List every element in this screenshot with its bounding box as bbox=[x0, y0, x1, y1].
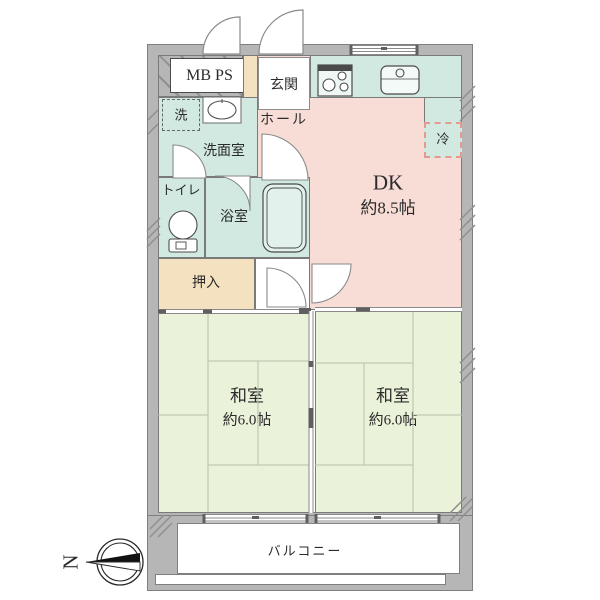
closet-area bbox=[158, 258, 255, 310]
compass-north-label: N bbox=[61, 554, 82, 569]
compass-icon bbox=[86, 539, 143, 585]
inner-hall-area bbox=[255, 258, 310, 310]
toilet-area bbox=[158, 177, 205, 258]
kitchen-counter-side bbox=[424, 97, 462, 123]
bath-area bbox=[205, 177, 310, 258]
balcony-floor bbox=[178, 524, 459, 573]
meterbox-label-box: MB PS bbox=[170, 58, 249, 93]
fridge-space bbox=[424, 122, 462, 158]
entrance-area bbox=[258, 57, 310, 110]
washitsu-left-area bbox=[158, 313, 310, 513]
washer-space bbox=[162, 99, 200, 131]
washitsu-right-area bbox=[315, 310, 462, 513]
floorplan: MB PS 玄関 ホール 洗 洗面室 トイレ 浴室 押入 冷 DK 約8.5帖 … bbox=[0, 0, 600, 600]
compass-needle bbox=[86, 553, 140, 562]
balcony-outer-ledge bbox=[156, 575, 445, 584]
meterbox-label: MB PS bbox=[186, 67, 233, 85]
kitchen-counter bbox=[310, 55, 462, 98]
